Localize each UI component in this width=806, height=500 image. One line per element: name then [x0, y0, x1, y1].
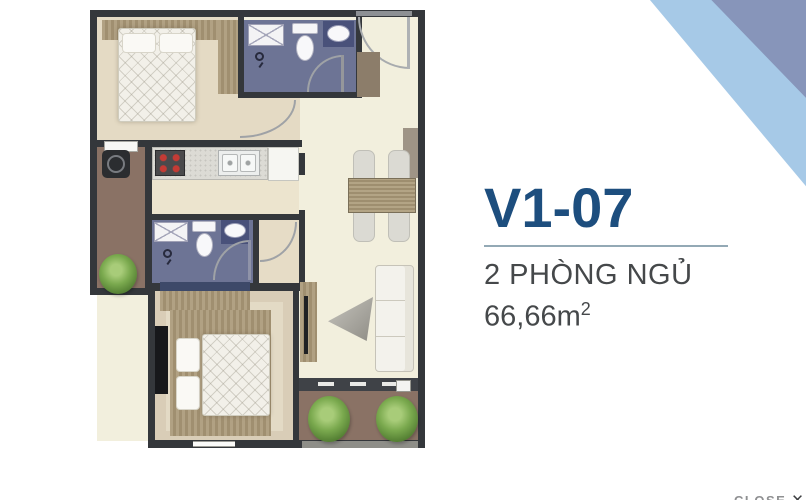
wall-bedroom1-right [238, 17, 244, 98]
sofa-cushion-line [376, 300, 405, 301]
stove [155, 150, 185, 176]
screen: V1-07 2 PHÒNG NGỦ 66,66m2 CLOSE ✕ [0, 0, 806, 500]
shoe-cabinet [357, 52, 380, 97]
tv-cabinet [300, 282, 317, 362]
wall-bathroom2-right [253, 214, 259, 291]
pillow [122, 33, 156, 53]
close-button[interactable]: CLOSE ✕ [734, 491, 804, 500]
wall-left-lower [148, 288, 155, 448]
toilet-tank [192, 221, 216, 232]
wall-right [418, 10, 425, 448]
wall-bathroom1-bottom [244, 92, 362, 98]
close-label: CLOSE [734, 493, 786, 500]
wall-bedroom2-right [293, 283, 299, 443]
wall-nook-right [299, 210, 305, 291]
area-superscript: 2 [581, 299, 591, 319]
tv-screen [304, 296, 308, 354]
wall-corridor [299, 153, 305, 175]
sliding-door-glass [318, 382, 334, 386]
kitchen-floor [152, 180, 299, 214]
wall-left-upper [90, 10, 97, 295]
dining-table [348, 178, 416, 213]
shower-head-icon [163, 249, 172, 258]
bedroom2-dresser [160, 291, 250, 311]
close-icon: ✕ [791, 491, 804, 500]
fridge [268, 147, 299, 181]
ac-unit [396, 380, 411, 392]
entry-door [407, 17, 410, 69]
wash-basin [224, 223, 246, 238]
bedroom2-closet [155, 326, 168, 394]
bathroom1-door [341, 55, 344, 92]
plant [376, 396, 418, 442]
entry-threshold [356, 11, 412, 16]
unit-info-panel: V1-07 2 PHÒNG NGỦ 66,66m2 [484, 180, 744, 334]
toilet-bowl [296, 35, 314, 61]
panel-divider [484, 245, 728, 247]
toilet-tank [292, 23, 318, 34]
plant [308, 396, 350, 442]
unit-code: V1-07 [484, 180, 744, 236]
sofa [375, 265, 414, 372]
sofa-cushion-line [376, 336, 405, 337]
area-value: 66,66m [484, 301, 581, 333]
bathroom2-shower [154, 222, 188, 242]
toilet-bowl [196, 233, 213, 257]
bedroom1-wardrobe [218, 20, 238, 94]
area-label: 66,66m2 [484, 299, 744, 334]
sink-bowl [240, 154, 256, 172]
wash-basin [327, 25, 350, 42]
washing-machine [102, 150, 130, 178]
bathroom1-shower [248, 24, 284, 46]
floorplan [90, 8, 430, 450]
pillow [159, 33, 193, 53]
sliding-door-glass [350, 382, 366, 386]
bathroom2-door [248, 240, 251, 280]
pillow [176, 376, 200, 410]
bedrooms-label: 2 PHÒNG NGỦ [484, 259, 744, 292]
bedroom2-wardrobe [160, 282, 250, 291]
bedroom2-bed [202, 334, 270, 416]
plant [99, 254, 137, 294]
bedroom2-window [193, 441, 235, 447]
pillow [176, 338, 200, 372]
sink-bowl [222, 154, 238, 172]
shower-head-icon [255, 52, 264, 61]
balcony-rail [302, 441, 418, 448]
